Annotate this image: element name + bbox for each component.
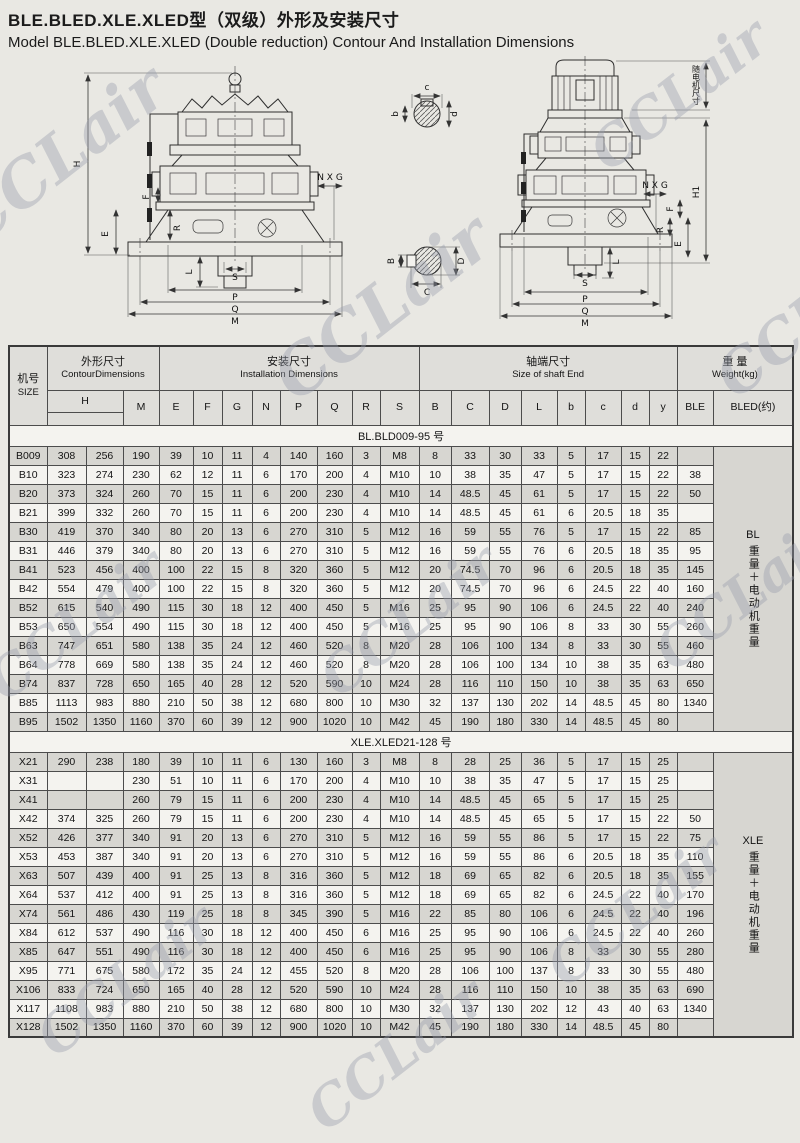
dim-cell: 983 [86,693,123,712]
dim-cell: 45 [419,1018,451,1037]
dim-cell [86,790,123,809]
dim-cell: 6 [557,598,585,617]
dim-cell: 460 [280,636,317,655]
dim-cell: 480 [677,655,713,674]
dim-cell: 86 [521,847,557,866]
dim-cell: 308 [47,446,86,465]
dim-cell: 76 [521,541,557,560]
dim-cell: 35 [621,655,649,674]
dim-cell: 12 [557,999,585,1018]
dim-cell: 106 [521,617,557,636]
dim-cell: 10 [419,771,451,790]
dim-cell: 453 [47,847,86,866]
dim-cell: 15 [193,484,222,503]
dim-cell: 5 [352,579,380,598]
dim-cell: 28 [419,961,451,980]
dim-cell: 15 [193,503,222,522]
dim-cell: 18 [621,847,649,866]
technical-drawings: H F E R N X G L S P [0,52,800,344]
dim-cell: 8 [557,636,585,655]
dim-label-f-right: F [666,206,676,211]
table-row: B637476515801383524124605208M20281061001… [9,636,793,655]
dim-cell: 35 [489,771,521,790]
dim-cell: 45 [489,809,521,828]
dim-cell: 74.5 [451,579,489,598]
dim-cell: 59 [451,847,489,866]
dim-cell: 55 [649,961,677,980]
dim-cell: 65 [489,866,521,885]
dim-cell: 55 [489,522,521,541]
table-row: B3144637934080201362703105M1216595576620… [9,541,793,560]
dim-cell: 6 [252,847,280,866]
dim-label-h1: H1 [692,186,702,199]
dim-cell: 6 [252,522,280,541]
dim-cell: 35 [649,541,677,560]
dim-cell: 561 [47,904,86,923]
dim-cell: 450 [317,942,352,961]
table-row: B1032327423062121161702004M1010383547517… [9,465,793,484]
dim-cell: 5 [352,560,380,579]
dim-cell: 79 [159,790,193,809]
size-cell: X85 [9,942,47,961]
dim-cell: 400 [123,885,159,904]
dim-cell: 17 [585,446,621,465]
dim-cell: M12 [380,541,419,560]
dim-cell: 30 [621,636,649,655]
dim-cell: 100 [489,655,521,674]
dim-cell: 479 [86,579,123,598]
dim-cell: 5 [352,885,380,904]
dim-label-e-right: E [674,241,684,247]
dim-cell: 22 [621,923,649,942]
dim-cell: 200 [280,790,317,809]
col-header-f: F [193,390,222,425]
dim-cell: 22 [419,904,451,923]
dim-cell: 115 [159,598,193,617]
dim-cell: 1020 [317,1018,352,1037]
dim-cell: M12 [380,522,419,541]
dim-cell: 85 [451,904,489,923]
dim-cell: 6 [252,541,280,560]
dim-cell: 450 [317,617,352,636]
dim-cell: 22 [649,484,677,503]
dim-cell: 22 [649,446,677,465]
dim-cell: 50 [193,999,222,1018]
dim-cell: 38 [222,999,252,1018]
dim-cell: 55 [649,636,677,655]
table-row: X117110898388021050381268080010M30321371… [9,999,793,1018]
table-row: X3123051101161702004M10103835475171525 [9,771,793,790]
dim-cell: 8 [352,655,380,674]
dim-cell: 370 [159,1018,193,1037]
col-header-d: D [489,390,521,425]
dim-cell: 15 [621,446,649,465]
dim-cell: 1350 [86,1018,123,1037]
dim-cell: 12 [252,961,280,980]
dim-cell: 35 [489,465,521,484]
dim-cell: 17 [585,484,621,503]
dim-cell: 13 [222,866,252,885]
dim-cell: 230 [123,771,159,790]
dim-cell: 30 [621,942,649,961]
dim-cell: 8 [557,942,585,961]
dim-cell: 6 [252,465,280,484]
dim-cell: 20 [193,828,222,847]
dim-cell [677,1018,713,1037]
dim-cell: 1160 [123,1018,159,1037]
table-row: B536505544901153018124004505M16259590106… [9,617,793,636]
dim-label-r-right: R [656,227,666,233]
dim-cell: 5 [557,771,585,790]
dim-cell: 18 [419,885,451,904]
dim-cell: 612 [47,923,86,942]
dim-cell: 116 [451,674,489,693]
dim-label-p: P [232,293,238,303]
dim-label-d-big: D [457,257,467,264]
dim-cell: 456 [86,560,123,579]
dim-cell: 370 [86,522,123,541]
dim-cell: 18 [419,866,451,885]
dim-cell: 325 [86,809,123,828]
size-cell: B31 [9,541,47,560]
dim-cell: 400 [280,923,317,942]
dim-cell: 15 [621,752,649,771]
dim-cell: 137 [451,999,489,1018]
dim-cell: 150 [521,674,557,693]
dim-cell: M30 [380,693,419,712]
dim-cell: 74.5 [451,560,489,579]
dim-cell [677,503,713,522]
dim-cell: 20 [419,560,451,579]
input-shaft-section-detail: c b d [391,83,460,127]
size-cell: B009 [9,446,47,465]
table-row: B95150213501160370603912900102010M424519… [9,712,793,731]
dim-cell [47,771,86,790]
size-cell: B85 [9,693,47,712]
dim-cell: 134 [521,636,557,655]
dim-cell: 650 [677,674,713,693]
dim-label-l: L [185,269,195,274]
dim-cell: 12 [252,980,280,999]
dim-cell: 460 [280,655,317,674]
dim-cell: 8 [557,961,585,980]
dim-cell: 439 [86,866,123,885]
dim-cell: 8 [252,885,280,904]
dim-cell: 80 [649,1018,677,1037]
col-header-b-lower: b [557,390,585,425]
dim-cell: 15 [621,809,649,828]
dim-cell: 196 [677,904,713,923]
dim-cell: 15 [621,465,649,484]
dim-cell: 11 [222,809,252,828]
dim-cell: 650 [123,674,159,693]
dim-cell: 17 [585,790,621,809]
dim-cell: 200 [317,771,352,790]
dim-cell: 17 [585,771,621,790]
dim-cell: 20.5 [585,866,621,885]
dim-cell: 460 [677,636,713,655]
dim-cell: 35 [193,655,222,674]
dim-cell: 134 [521,655,557,674]
dim-cell: 60 [193,1018,222,1037]
dim-cell: 155 [677,866,713,885]
dim-cell: 690 [677,980,713,999]
dim-cell: 400 [280,617,317,636]
dim-cell: 10 [193,446,222,465]
dim-cell: 12 [252,598,280,617]
dim-cell: 10 [193,752,222,771]
dim-cell: 11 [222,484,252,503]
dim-cell: 18 [222,598,252,617]
dim-cell: 14 [419,503,451,522]
dim-cell: 280 [677,942,713,961]
dim-label-f: F [142,194,152,199]
dim-cell: 110 [489,674,521,693]
dim-cell [677,712,713,731]
dim-cell: 800 [317,693,352,712]
dim-cell: 374 [47,809,86,828]
dim-cell: 419 [47,522,86,541]
dim-cell: 80 [649,693,677,712]
dim-cell: 5 [352,847,380,866]
dim-cell: 80 [649,712,677,731]
table-row: B647786695801383524124605208M20281061001… [9,655,793,674]
table-row: X2129023818039101161301603M8828253651715… [9,752,793,771]
dim-cell: 25 [649,790,677,809]
dim-cell: 15 [621,828,649,847]
dim-cell: 3 [352,752,380,771]
size-cell: B42 [9,579,47,598]
table-row: B7483772865016540281252059010M2428116110… [9,674,793,693]
size-cell: B63 [9,636,47,655]
table-row: X6350743940091251383163605M1218696582620… [9,866,793,885]
dim-cell: 39 [159,752,193,771]
dim-cell: 24.5 [585,579,621,598]
table-row: X6453741240091251383163605M1218696582624… [9,885,793,904]
dim-cell: 17 [585,522,621,541]
dim-cell: 39 [222,712,252,731]
dim-cell: 15 [621,522,649,541]
dim-cell: 45 [489,790,521,809]
dim-cell: 340 [123,541,159,560]
dim-cell: 65 [489,885,521,904]
dim-cell: 15 [222,560,252,579]
table-row: B2037332426070151162002304M101448.545615… [9,484,793,503]
dim-cell: 10 [352,999,380,1018]
dim-cell: 22 [649,522,677,541]
dim-cell: 8 [252,904,280,923]
dim-cell: 6 [252,484,280,503]
section-label: XLE.XLED21-128 号 [9,731,793,752]
page-title-en: Model BLE.BLED.XLE.XLED (Double reductio… [8,34,792,51]
dim-cell: 40 [193,674,222,693]
dim-cell: 24.5 [585,904,621,923]
dim-cell: 5 [557,522,585,541]
dim-cell: 24.5 [585,923,621,942]
dim-cell: 551 [86,942,123,961]
dim-cell: 18 [222,923,252,942]
table-row: X4126079151162002304M101448.545655171525 [9,790,793,809]
size-cell: B95 [9,712,47,731]
dim-cell: 373 [47,484,86,503]
dim-cell: 28 [222,980,252,999]
dim-label-e: E [101,231,111,237]
dim-cell: M8 [380,446,419,465]
dim-cell: 90 [489,942,521,961]
dim-cell: 62 [159,465,193,484]
dim-cell: 51 [159,771,193,790]
dim-cell: 47 [521,465,557,484]
dim-cell: 20.5 [585,560,621,579]
dim-cell: M24 [380,980,419,999]
dim-cell: 377 [86,828,123,847]
dim-cell: 110 [489,980,521,999]
dim-cell: 33 [521,446,557,465]
dim-cell: 6 [252,828,280,847]
dim-cell: M10 [380,790,419,809]
dim-cell: 6 [252,752,280,771]
dim-cell: 170 [677,885,713,904]
dim-cell: 90 [489,598,521,617]
dim-cell: 48.5 [451,503,489,522]
dim-cell: M10 [380,484,419,503]
dim-cell: 50 [193,693,222,712]
dim-cell: 580 [123,961,159,980]
dim-cell: 25 [193,866,222,885]
dim-cell: 30 [621,617,649,636]
weight-note-prefix: BL [714,528,793,542]
dim-cell: 48.5 [451,790,489,809]
dim-cell: 5 [557,484,585,503]
dim-cell: 8 [352,636,380,655]
table-row: X846125374901163018124004506M16259590106… [9,923,793,942]
dim-cell: 412 [86,885,123,904]
dim-cell: 332 [86,503,123,522]
dim-cell: 15 [621,484,649,503]
weight-note-cell: BL重量＋电动机重量 [713,446,793,731]
dim-cell: 48.5 [451,484,489,503]
dim-cell: 5 [352,904,380,923]
dim-cell: 106 [451,636,489,655]
dim-cell: 10 [557,655,585,674]
dim-cell: 320 [280,560,317,579]
dim-cell: 230 [317,809,352,828]
dim-cell: 6 [557,560,585,579]
dim-cell: 28 [451,752,489,771]
dim-cell: 70 [159,503,193,522]
size-cell: B20 [9,484,47,503]
dim-cell: 554 [47,579,86,598]
dim-cell: 65 [521,809,557,828]
dim-cell: 30 [193,598,222,617]
dim-cell: 230 [123,465,159,484]
dim-cell: 140 [280,446,317,465]
dim-cell: 15 [222,579,252,598]
dim-cell: 61 [521,503,557,522]
dim-cell: 900 [280,1018,317,1037]
dim-cell: M30 [380,999,419,1018]
dim-cell: 13 [222,541,252,560]
dim-cell: 25 [649,771,677,790]
dim-cell: 6 [557,866,585,885]
dim-cell: 320 [280,579,317,598]
dim-cell: 106 [521,904,557,923]
dim-label-m: M [231,317,239,327]
dim-cell: 172 [159,961,193,980]
dim-cell: 728 [86,674,123,693]
dim-cell: M10 [380,503,419,522]
weight-note-cell: XLE重量＋电动机重量 [713,752,793,1037]
col-header-s: S [380,390,419,425]
dim-cell: M16 [380,942,419,961]
table-row: X957716755801723524124555208M20281061001… [9,961,793,980]
size-cell: B41 [9,560,47,579]
dim-cell: 540 [86,598,123,617]
dim-cell: 330 [521,1018,557,1037]
dim-cell: 85 [677,522,713,541]
dim-cell: 40 [621,999,649,1018]
dim-cell: 115 [159,617,193,636]
dim-cell: 25 [193,904,222,923]
dim-cell: 450 [317,598,352,617]
dim-cell: 17 [585,752,621,771]
dim-cell: 590 [317,980,352,999]
dim-cell: 554 [86,617,123,636]
dim-cell: 70 [489,560,521,579]
col-group-installation: 安装尺寸 Installation Dimensions [159,346,419,390]
dim-cell: 387 [86,847,123,866]
dim-cell: 180 [123,752,159,771]
dim-cell: 486 [86,904,123,923]
dim-cell: 200 [317,465,352,484]
dim-cell: 15 [621,771,649,790]
dim-cell: 6 [557,923,585,942]
dim-cell: 38 [585,674,621,693]
dim-cell [677,771,713,790]
size-cell: X106 [9,980,47,999]
dim-cell: 165 [159,674,193,693]
dim-cell: 900 [280,712,317,731]
col-header-c-lower: c [585,390,621,425]
dim-cell: 11 [222,446,252,465]
dim-cell: M10 [380,771,419,790]
dim-cell: 6 [557,503,585,522]
dim-cell: 480 [677,961,713,980]
dim-cell: 22 [621,579,649,598]
dim-cell: 12 [252,923,280,942]
dim-cell: 165 [159,980,193,999]
dim-cell: 200 [280,503,317,522]
dim-label-b-small: b [391,111,401,117]
dim-cell: 55 [489,541,521,560]
dim-cell: M16 [380,904,419,923]
dim-cell: 145 [677,560,713,579]
dim-cell: 202 [521,693,557,712]
dim-cell: 1108 [47,999,86,1018]
dim-cell: 15 [193,790,222,809]
dim-cell: 10 [352,674,380,693]
dim-cell: 96 [521,560,557,579]
dim-cell: 38 [451,465,489,484]
dim-cell: 5 [352,617,380,636]
table-row: B2139933226070151162002304M101448.545616… [9,503,793,522]
dim-cell: 40 [649,579,677,598]
dim-cell: 260 [677,923,713,942]
dim-cell: 80 [159,522,193,541]
dim-cell: 33 [451,446,489,465]
dim-cell: 95 [451,942,489,961]
table-row: X5345338734091201362703105M1216595586620… [9,847,793,866]
